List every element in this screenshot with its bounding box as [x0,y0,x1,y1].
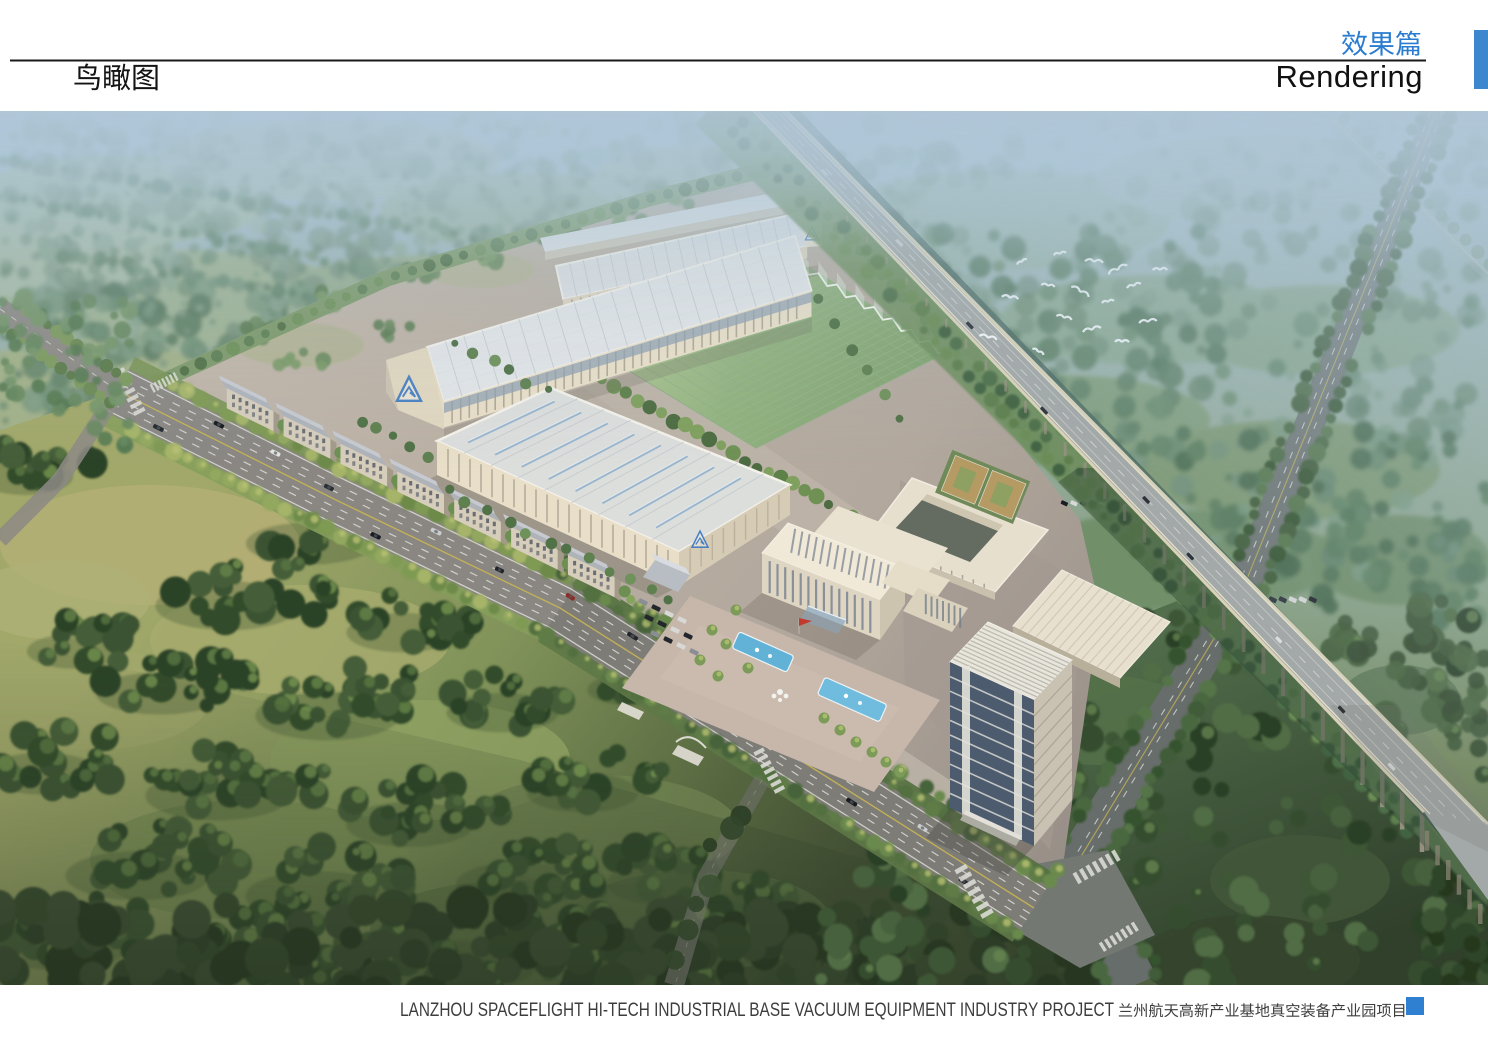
svg-text:LANZHOU SPACEFLIGHT HI-TECH: LANZHOU SPACEFLIGHT HI-TECH INDUSTRIAL B… [400,1000,1114,1021]
svg-text:Rendering: Rendering [1275,59,1423,94]
